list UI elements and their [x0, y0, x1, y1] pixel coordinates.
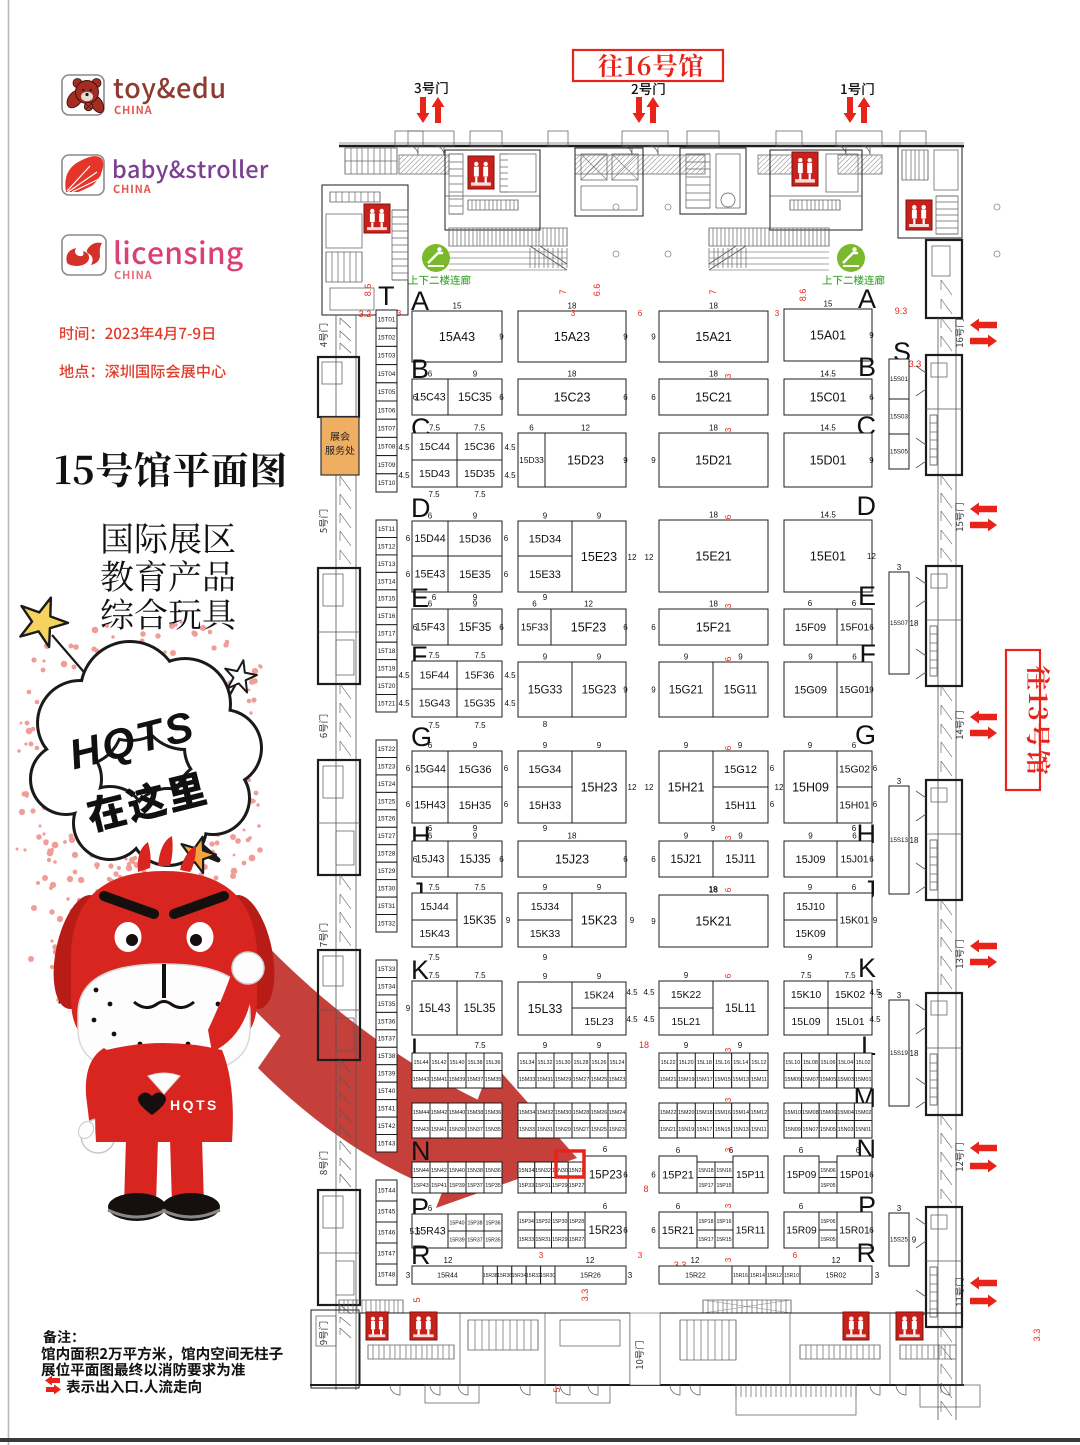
svg-text:9: 9 [738, 1041, 743, 1050]
svg-text:15L20: 15L20 [679, 1060, 694, 1066]
svg-text:15N31: 15N31 [537, 1127, 553, 1133]
svg-text:6: 6 [852, 653, 857, 662]
svg-text:15P15: 15P15 [716, 1183, 731, 1189]
svg-text:15P34: 15P34 [519, 1219, 534, 1225]
svg-text:15T35: 15T35 [378, 1001, 396, 1008]
svg-text:6: 6 [651, 393, 656, 402]
svg-text:15G09: 15G09 [794, 684, 827, 696]
svg-text:15P11: 15P11 [736, 1170, 765, 1181]
svg-text:6: 6 [676, 1202, 681, 1211]
svg-text:15F23: 15F23 [571, 620, 606, 634]
svg-text:15N15: 15N15 [715, 1127, 731, 1133]
svg-text:15M05: 15M05 [820, 1077, 836, 1083]
svg-text:3.3: 3.3 [580, 1289, 590, 1302]
svg-text:9: 9 [651, 917, 656, 926]
svg-text:7: 7 [558, 289, 568, 294]
svg-text:15L01: 15L01 [835, 1016, 864, 1028]
svg-text:15P23: 15P23 [589, 1170, 622, 1182]
svg-text:6: 6 [413, 393, 418, 402]
svg-text:9: 9 [684, 971, 689, 980]
svg-text:7.5: 7.5 [474, 651, 486, 660]
svg-text:6: 6 [499, 855, 504, 864]
svg-text:15M22: 15M22 [660, 1110, 676, 1116]
svg-text:15M42: 15M42 [431, 1110, 447, 1116]
svg-text:15M24: 15M24 [609, 1110, 625, 1116]
svg-text:9: 9 [738, 653, 743, 662]
svg-text:7: 7 [708, 289, 718, 294]
svg-text:18: 18 [568, 832, 577, 841]
svg-text:6: 6 [873, 800, 878, 809]
svg-text:15P41: 15P41 [431, 1183, 447, 1189]
svg-text:9: 9 [684, 741, 689, 750]
svg-text:9: 9 [543, 953, 548, 962]
svg-text:15T29: 15T29 [378, 868, 396, 875]
svg-text:6: 6 [623, 1171, 628, 1180]
svg-text:15N35: 15N35 [485, 1127, 501, 1133]
svg-text:15F09: 15F09 [795, 622, 826, 634]
svg-text:15M32: 15M32 [537, 1110, 553, 1116]
svg-text:4.5: 4.5 [398, 443, 410, 452]
svg-text:15T17: 15T17 [378, 631, 396, 638]
svg-text:6: 6 [406, 534, 411, 543]
svg-text:15T33: 15T33 [378, 966, 396, 973]
svg-text:6: 6 [869, 855, 874, 864]
svg-text:15T18: 15T18 [378, 648, 396, 655]
svg-text:15T34: 15T34 [378, 983, 396, 990]
svg-text:3: 3 [775, 309, 780, 318]
svg-text:6.6: 6.6 [592, 284, 602, 297]
svg-text:15R44: 15R44 [437, 1273, 458, 1280]
svg-text:15N25: 15N25 [591, 1127, 607, 1133]
svg-text:15T07: 15T07 [378, 426, 396, 433]
svg-text:6: 6 [793, 1251, 798, 1260]
svg-text:3: 3 [724, 603, 733, 608]
svg-text:15R23: 15R23 [589, 1225, 623, 1237]
svg-text:15R16: 15R16 [733, 1273, 748, 1279]
svg-text:15L11: 15L11 [725, 1003, 756, 1015]
svg-text:15P32: 15P32 [536, 1219, 551, 1225]
svg-text:9: 9 [808, 832, 813, 841]
svg-text:12: 12 [581, 424, 590, 433]
svg-text:15E23: 15E23 [581, 550, 617, 564]
svg-text:15M21: 15M21 [660, 1077, 676, 1083]
svg-text:7.5: 7.5 [428, 651, 440, 660]
svg-text:6: 6 [873, 764, 878, 773]
svg-text:15G01: 15G01 [839, 685, 870, 696]
svg-text:15C23: 15C23 [554, 390, 591, 404]
svg-text:15T26: 15T26 [378, 816, 396, 823]
svg-text:15L14: 15L14 [733, 1060, 748, 1066]
svg-text:9: 9 [808, 883, 813, 892]
svg-text:6: 6 [651, 1226, 656, 1235]
svg-text:15S07: 15S07 [890, 620, 908, 627]
svg-text:9: 9 [912, 1236, 917, 1245]
svg-text:6: 6 [504, 534, 509, 543]
svg-text:9: 9 [651, 686, 656, 695]
svg-text:3: 3 [897, 563, 902, 572]
svg-text:15C01: 15C01 [810, 390, 847, 404]
svg-text:18: 18 [709, 302, 718, 311]
svg-text:6: 6 [799, 1146, 804, 1155]
svg-text:15N06: 15N06 [820, 1168, 835, 1174]
svg-text:15R36: 15R36 [497, 1273, 512, 1279]
svg-text:15N29: 15N29 [555, 1127, 571, 1133]
svg-text:15N33: 15N33 [519, 1127, 535, 1133]
svg-text:9.3: 9.3 [895, 306, 908, 316]
svg-text:7.5: 7.5 [800, 971, 812, 980]
svg-text:6: 6 [623, 1226, 628, 1235]
svg-text:15M13: 15M13 [733, 1077, 749, 1083]
svg-text:15P17: 15P17 [698, 1183, 713, 1189]
svg-text:D: D [857, 491, 877, 521]
svg-text:6: 6 [724, 656, 733, 661]
svg-text:15L44: 15L44 [414, 1060, 429, 1066]
svg-text:15K02: 15K02 [835, 989, 866, 1001]
svg-text:6: 6 [651, 623, 656, 632]
svg-text:18: 18 [639, 1040, 649, 1050]
svg-text:6: 6 [428, 832, 433, 841]
svg-text:15L12: 15L12 [751, 1060, 766, 1066]
svg-text:9: 9 [543, 653, 548, 662]
svg-text:15N07: 15N07 [802, 1127, 818, 1133]
svg-text:15L40: 15L40 [450, 1060, 465, 1066]
svg-text:12: 12 [628, 553, 637, 562]
svg-text:15P16: 15P16 [716, 1219, 731, 1225]
svg-text:12: 12 [832, 1256, 841, 1265]
svg-text:15S01: 15S01 [890, 376, 908, 383]
svg-text:15N03: 15N03 [838, 1127, 854, 1133]
svg-text:6: 6 [724, 887, 733, 892]
svg-text:6: 6 [529, 424, 534, 433]
svg-text:15N39: 15N39 [449, 1127, 465, 1133]
svg-text:15L16: 15L16 [715, 1060, 730, 1066]
svg-text:15K35: 15K35 [463, 915, 496, 927]
svg-text:B: B [858, 352, 876, 382]
svg-text:15T28: 15T28 [378, 851, 396, 858]
svg-text:9: 9 [684, 653, 689, 662]
svg-text:3: 3 [724, 427, 733, 432]
svg-text:15M41: 15M41 [431, 1077, 447, 1083]
svg-text:15R33: 15R33 [519, 1237, 534, 1243]
svg-text:15M33: 15M33 [519, 1077, 535, 1083]
svg-text:6: 6 [852, 832, 857, 841]
svg-text:15T36: 15T36 [378, 1018, 396, 1025]
svg-text:15G12: 15G12 [724, 764, 757, 776]
svg-text:6: 6 [603, 1202, 608, 1211]
svg-text:15L43: 15L43 [419, 1003, 451, 1015]
svg-text:9: 9 [499, 333, 504, 342]
svg-text:9: 9 [543, 512, 548, 521]
svg-text:15R27: 15R27 [569, 1237, 584, 1243]
svg-text:15L02: 15L02 [856, 1060, 871, 1066]
svg-text:15R05: 15R05 [820, 1237, 835, 1243]
svg-text:6: 6 [413, 855, 418, 864]
svg-text:18: 18 [709, 370, 718, 379]
svg-text:15F01: 15F01 [840, 623, 870, 634]
svg-text:9: 9 [738, 741, 743, 750]
svg-text:3: 3 [397, 309, 402, 318]
svg-text:7.5: 7.5 [428, 971, 440, 980]
svg-text:15M14: 15M14 [733, 1110, 749, 1116]
svg-text:9: 9 [406, 1004, 411, 1013]
svg-text:15M34: 15M34 [519, 1110, 535, 1116]
svg-text:15P30: 15P30 [552, 1219, 567, 1225]
svg-text:4.5: 4.5 [643, 1015, 655, 1024]
svg-text:15H35: 15H35 [459, 800, 491, 812]
svg-text:15N05: 15N05 [820, 1127, 836, 1133]
svg-text:4.5: 4.5 [398, 699, 410, 708]
svg-text:15L18: 15L18 [697, 1060, 712, 1066]
svg-text:15M39: 15M39 [449, 1077, 465, 1083]
svg-text:15P35: 15P35 [485, 1183, 501, 1189]
svg-text:6: 6 [770, 800, 775, 809]
svg-text:6: 6 [852, 599, 857, 608]
svg-text:15A21: 15A21 [695, 330, 731, 344]
svg-text:15M27: 15M27 [573, 1077, 589, 1083]
svg-text:18: 18 [910, 836, 919, 845]
svg-text:6: 6 [852, 883, 857, 892]
svg-text:15P18: 15P18 [698, 1219, 713, 1225]
svg-text:6: 6 [676, 1146, 681, 1155]
svg-text:6: 6 [428, 512, 433, 521]
svg-text:6: 6 [603, 1145, 608, 1154]
svg-text:15M37: 15M37 [467, 1077, 483, 1083]
svg-text:4.5: 4.5 [643, 988, 655, 997]
svg-text:HQTS: HQTS [170, 1097, 219, 1113]
svg-text:15M11: 15M11 [751, 1077, 767, 1083]
svg-text:15F35: 15F35 [459, 622, 492, 634]
svg-text:6: 6 [428, 1204, 433, 1213]
svg-text:15K23: 15K23 [581, 913, 617, 927]
svg-text:15R09: 15R09 [786, 1226, 817, 1237]
svg-text:15N36: 15N36 [485, 1168, 501, 1174]
svg-text:15K24: 15K24 [584, 990, 615, 1002]
svg-text:15M26: 15M26 [591, 1110, 607, 1116]
svg-text:7.5: 7.5 [474, 1041, 486, 1050]
svg-text:6: 6 [504, 570, 509, 579]
svg-text:6: 6 [504, 800, 509, 809]
svg-text:15M20: 15M20 [678, 1110, 694, 1116]
svg-text:15T09: 15T09 [378, 462, 396, 469]
svg-text:15P31: 15P31 [535, 1183, 551, 1189]
svg-text:3: 3 [724, 835, 733, 840]
svg-text:18: 18 [709, 424, 718, 433]
svg-text:7.5: 7.5 [428, 883, 440, 892]
svg-text:15R39: 15R39 [449, 1238, 464, 1244]
svg-text:15T42: 15T42 [378, 1123, 396, 1130]
svg-text:7.5: 7.5 [474, 490, 486, 499]
svg-text:15L09: 15L09 [791, 1016, 820, 1028]
svg-text:4.5: 4.5 [398, 471, 410, 480]
svg-text:15T11: 15T11 [378, 526, 396, 533]
svg-text:12: 12 [444, 1256, 453, 1265]
svg-text:6: 6 [799, 1202, 804, 1211]
svg-text:15R17: 15R17 [698, 1237, 713, 1243]
svg-text:15N37: 15N37 [467, 1127, 483, 1133]
svg-text:15K21: 15K21 [695, 914, 731, 928]
svg-text:15P09: 15P09 [787, 1170, 817, 1181]
svg-text:15P37: 15P37 [467, 1183, 483, 1189]
svg-text:15R14: 15R14 [750, 1273, 765, 1279]
svg-text:T: T [378, 281, 395, 311]
svg-text:15H11: 15H11 [725, 800, 757, 812]
svg-text:15T37: 15T37 [378, 1036, 396, 1043]
svg-text:9: 9 [808, 653, 813, 662]
svg-text:12: 12 [628, 783, 637, 792]
svg-text:15E01: 15E01 [810, 549, 846, 563]
svg-text:15R32: 15R32 [526, 1273, 541, 1279]
svg-text:3: 3 [628, 1271, 633, 1280]
svg-text:9: 9 [808, 953, 813, 962]
svg-text:3: 3 [724, 1147, 733, 1152]
svg-text:15M02: 15M02 [855, 1110, 871, 1116]
svg-text:15L36: 15L36 [486, 1060, 501, 1066]
svg-text:6: 6 [856, 1146, 861, 1155]
svg-text:15L06: 15L06 [821, 1060, 836, 1066]
svg-text:15P21: 15P21 [662, 1169, 694, 1181]
svg-text:6: 6 [724, 745, 733, 750]
svg-text:15D35: 15D35 [464, 468, 495, 480]
svg-text:15T25: 15T25 [378, 798, 396, 805]
svg-text:6: 6 [724, 514, 733, 519]
svg-text:15G23: 15G23 [582, 685, 617, 697]
svg-text:18: 18 [568, 370, 577, 379]
svg-text:15N28: 15N28 [569, 1168, 585, 1174]
svg-text:15G11: 15G11 [724, 685, 758, 697]
svg-text:9: 9 [711, 824, 716, 833]
svg-text:6: 6 [638, 309, 643, 318]
svg-text:12: 12 [691, 1256, 700, 1265]
svg-text:6: 6 [428, 370, 433, 379]
svg-text:3.2: 3.2 [359, 309, 372, 319]
svg-text:7.5: 7.5 [474, 721, 486, 730]
svg-text:15N34: 15N34 [518, 1168, 534, 1174]
svg-text:15L26: 15L26 [592, 1060, 607, 1066]
svg-text:15T46: 15T46 [378, 1230, 396, 1237]
svg-text:15L21: 15L21 [671, 1016, 700, 1028]
svg-text:6: 6 [428, 600, 433, 609]
svg-text:5.5: 5.5 [409, 1227, 421, 1236]
svg-text:9: 9 [651, 333, 656, 342]
svg-text:6: 6 [406, 764, 411, 773]
svg-text:15N13: 15N13 [733, 1127, 749, 1133]
svg-text:7.5: 7.5 [474, 883, 486, 892]
svg-text:7.5: 7.5 [844, 971, 856, 980]
svg-text:6: 6 [869, 393, 874, 402]
svg-text:4.5: 4.5 [398, 671, 410, 680]
svg-text:15P28: 15P28 [569, 1219, 584, 1225]
svg-text:6: 6 [406, 800, 411, 809]
svg-text:9: 9 [873, 916, 878, 925]
svg-text:15P29: 15P29 [552, 1183, 568, 1189]
svg-text:9: 9 [543, 741, 548, 750]
svg-text:15R37: 15R37 [467, 1238, 482, 1244]
svg-text:6: 6 [808, 599, 813, 608]
svg-text:15L24: 15L24 [610, 1060, 625, 1066]
svg-text:15R35: 15R35 [485, 1238, 500, 1244]
svg-text:9: 9 [684, 1041, 689, 1050]
svg-text:9: 9 [597, 1041, 602, 1050]
svg-text:15T32: 15T32 [378, 921, 396, 928]
svg-text:15P40: 15P40 [449, 1221, 464, 1227]
svg-text:15G34: 15G34 [528, 764, 561, 776]
svg-text:15L10: 15L10 [785, 1060, 800, 1066]
svg-text:15J43: 15J43 [416, 854, 445, 866]
svg-text:9: 9 [543, 972, 548, 981]
svg-text:15R30: 15R30 [540, 1273, 555, 1279]
svg-text:15K43: 15K43 [419, 928, 450, 940]
svg-text:3: 3 [638, 1251, 643, 1260]
svg-text:6: 6 [413, 623, 418, 632]
svg-text:7.5: 7.5 [474, 424, 486, 433]
svg-text:15M35: 15M35 [485, 1077, 501, 1083]
svg-text:15A23: 15A23 [554, 330, 590, 344]
svg-text:6: 6 [623, 855, 628, 864]
svg-text:8.6: 8.6 [798, 289, 808, 302]
svg-text:15N17: 15N17 [696, 1127, 712, 1133]
svg-text:15T06: 15T06 [378, 407, 396, 414]
svg-text:15T39: 15T39 [378, 1071, 396, 1078]
svg-text:15T14: 15T14 [378, 578, 396, 585]
svg-text:15N43: 15N43 [413, 1127, 429, 1133]
svg-text:15K33: 15K33 [530, 928, 561, 940]
svg-text:3.3: 3.3 [1032, 1329, 1042, 1342]
svg-text:15M08: 15M08 [802, 1110, 818, 1116]
svg-text:6: 6 [651, 855, 656, 864]
svg-text:15T21: 15T21 [378, 701, 396, 708]
svg-text:3: 3 [875, 1271, 880, 1280]
svg-text:3: 3 [406, 1271, 411, 1280]
svg-text:6: 6 [499, 623, 504, 632]
svg-text:15T38: 15T38 [378, 1053, 396, 1060]
svg-text:15G43: 15G43 [419, 698, 451, 710]
svg-text:15J01: 15J01 [840, 855, 868, 866]
svg-text:15P33: 15P33 [519, 1183, 535, 1189]
svg-text:15J34: 15J34 [531, 901, 560, 913]
svg-text:15R29: 15R29 [552, 1237, 567, 1243]
svg-text:14.5: 14.5 [820, 370, 836, 379]
svg-text:4.5: 4.5 [626, 988, 638, 997]
svg-text:15L30: 15L30 [556, 1060, 571, 1066]
svg-text:15F44: 15F44 [420, 670, 450, 682]
svg-text:4.5: 4.5 [504, 471, 516, 480]
svg-text:15H09: 15H09 [792, 780, 829, 794]
svg-text:9: 9 [543, 1041, 548, 1050]
svg-text:15H33: 15H33 [529, 800, 561, 812]
svg-text:15T31: 15T31 [378, 903, 396, 910]
svg-text:15T27: 15T27 [378, 833, 396, 840]
svg-text:4.5: 4.5 [504, 699, 516, 708]
svg-text:15P27: 15P27 [569, 1183, 585, 1189]
svg-text:15H01: 15H01 [839, 801, 870, 812]
svg-text:15M28: 15M28 [573, 1110, 589, 1116]
svg-text:15D23: 15D23 [567, 453, 604, 467]
svg-text:R: R [857, 1238, 877, 1268]
svg-text:15R26: 15R26 [580, 1273, 601, 1280]
svg-text:15N16: 15N16 [716, 1168, 731, 1174]
svg-text:6: 6 [852, 741, 857, 750]
svg-text:15K09: 15K09 [795, 928, 826, 940]
svg-text:4.5: 4.5 [504, 443, 516, 452]
svg-text:15F33: 15F33 [521, 622, 549, 633]
svg-text:15R31: 15R31 [535, 1237, 550, 1243]
svg-text:15M30: 15M30 [555, 1110, 571, 1116]
svg-text:9: 9 [623, 456, 628, 465]
svg-text:3: 3 [724, 1257, 733, 1262]
svg-text:15N27: 15N27 [573, 1127, 589, 1133]
svg-text:15T04: 15T04 [378, 371, 396, 378]
svg-text:12: 12 [775, 783, 784, 792]
